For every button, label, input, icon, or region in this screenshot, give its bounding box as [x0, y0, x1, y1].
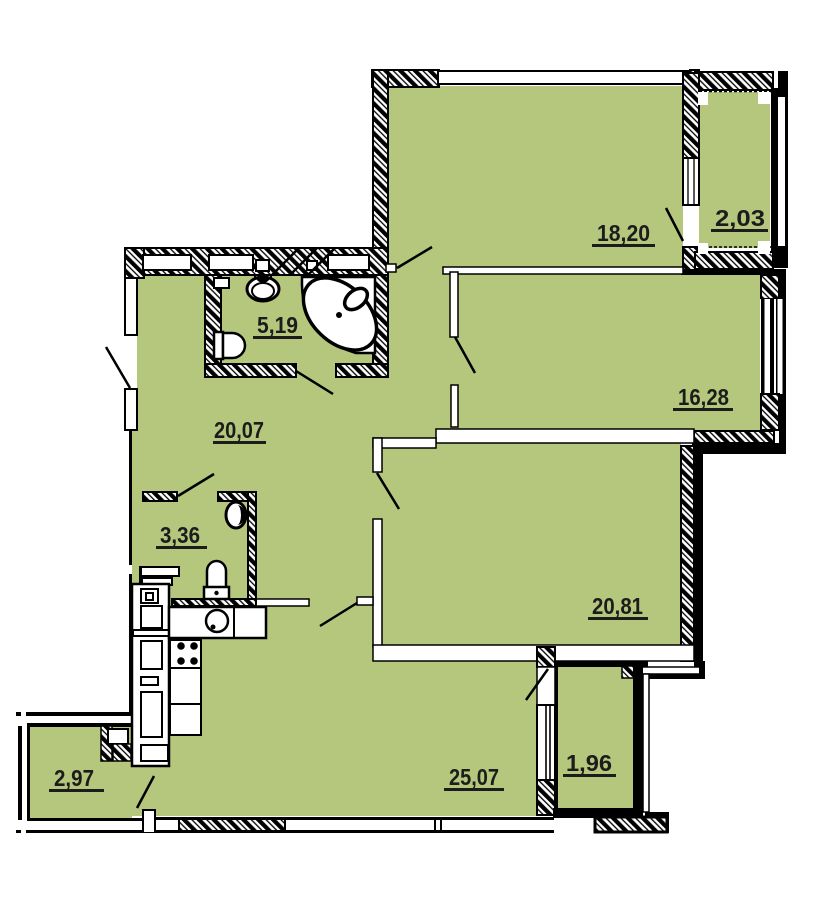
svg-text:16,28: 16,28	[678, 384, 729, 410]
svg-text:20,07: 20,07	[214, 417, 264, 443]
svg-text:2,03: 2,03	[715, 205, 765, 231]
svg-text:20,81: 20,81	[592, 593, 643, 619]
svg-text:1,96: 1,96	[566, 750, 612, 776]
svg-text:25,07: 25,07	[449, 764, 499, 790]
svg-text:5,19: 5,19	[257, 312, 298, 338]
svg-text:3,36: 3,36	[160, 522, 200, 548]
svg-text:2,97: 2,97	[54, 765, 94, 791]
svg-text:18,20: 18,20	[597, 220, 650, 246]
